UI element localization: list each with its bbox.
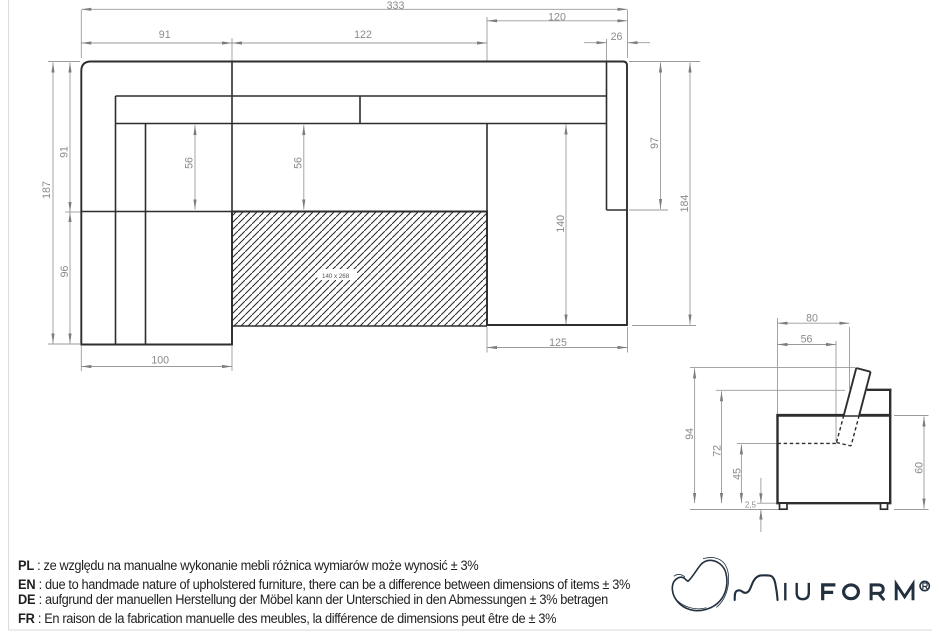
svg-text:2,5: 2,5 xyxy=(745,501,757,510)
svg-text:97: 97 xyxy=(649,137,661,149)
svg-text:91: 91 xyxy=(59,146,71,158)
svg-text:120: 120 xyxy=(548,11,566,23)
svg-text:56: 56 xyxy=(801,334,813,346)
svg-text:100: 100 xyxy=(151,354,169,366)
svg-text:184: 184 xyxy=(679,195,691,213)
svg-text:26: 26 xyxy=(611,31,623,43)
svg-text:125: 125 xyxy=(549,337,567,349)
svg-text:56: 56 xyxy=(184,157,196,169)
svg-text:45: 45 xyxy=(732,468,744,480)
svg-text:122: 122 xyxy=(354,29,372,41)
svg-text:333: 333 xyxy=(387,0,405,12)
svg-text:140 x 268: 140 x 268 xyxy=(322,273,350,280)
svg-text:60: 60 xyxy=(913,462,925,474)
svg-text:94: 94 xyxy=(684,428,696,440)
svg-text:187: 187 xyxy=(41,181,53,199)
svg-text:91: 91 xyxy=(159,29,171,41)
svg-text:140: 140 xyxy=(555,215,567,233)
svg-text:96: 96 xyxy=(59,266,71,278)
svg-text:56: 56 xyxy=(293,157,305,169)
svg-text:80: 80 xyxy=(806,312,818,324)
svg-text:72: 72 xyxy=(712,445,724,457)
